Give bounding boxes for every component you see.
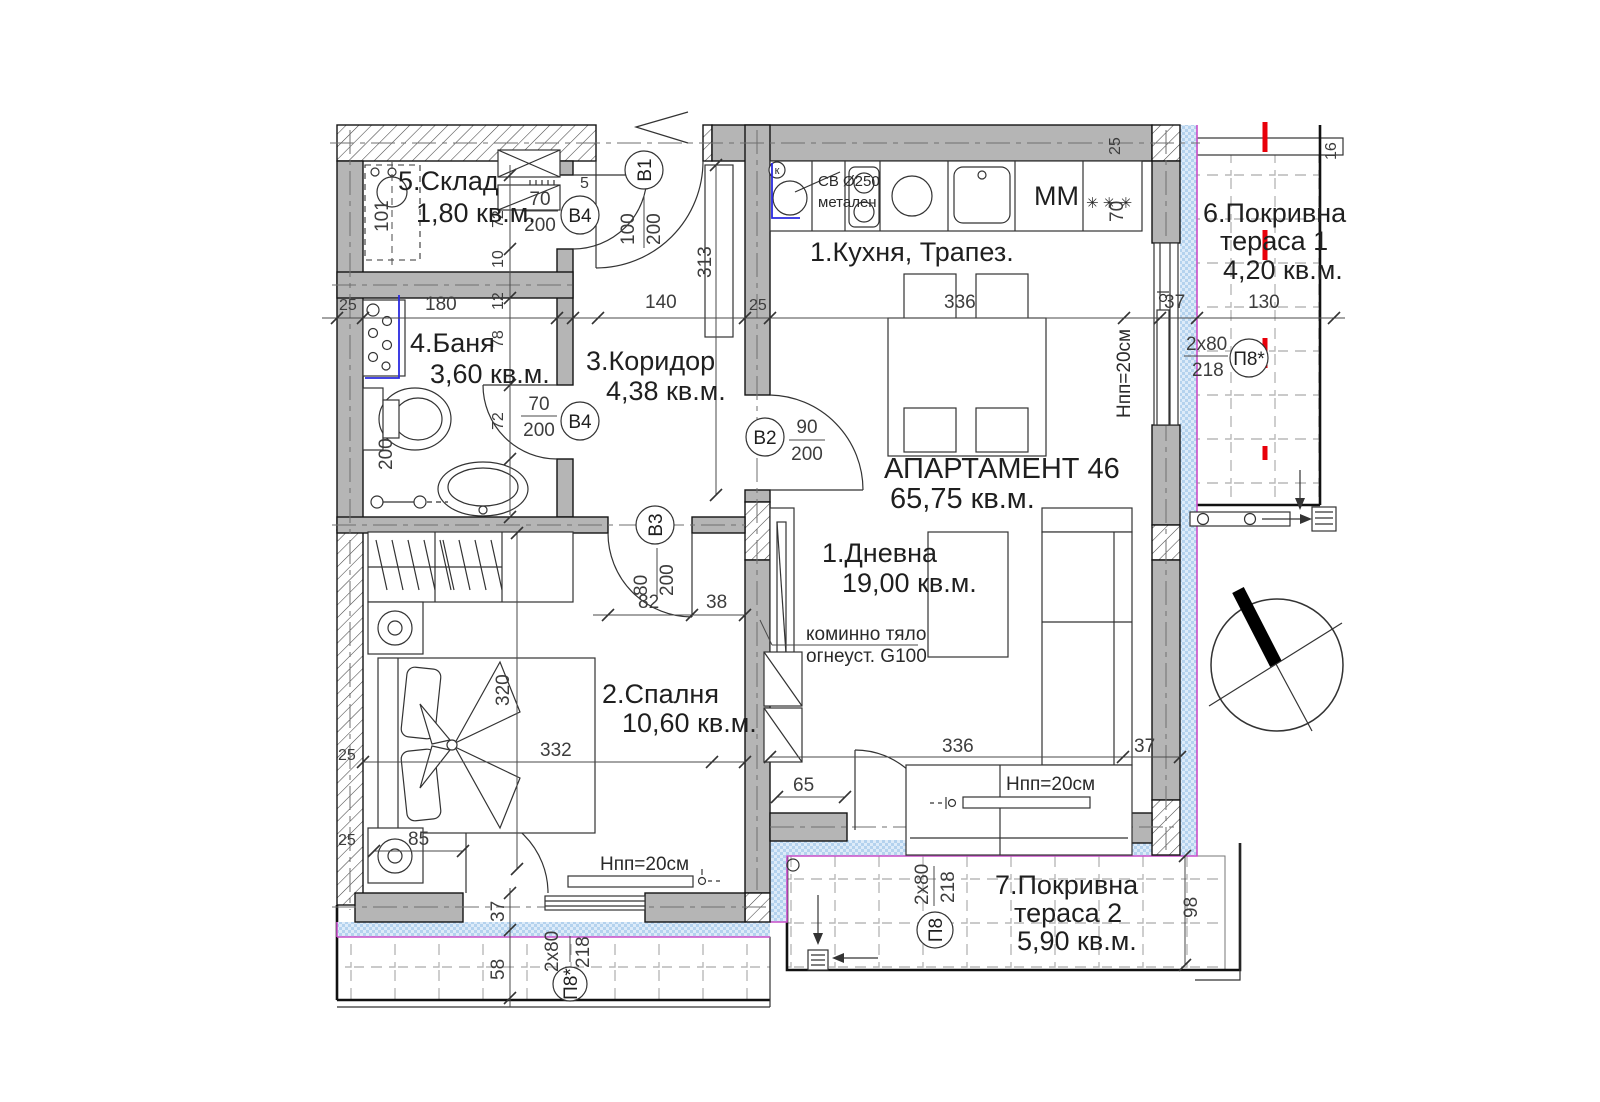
- dim: 100: [618, 213, 639, 245]
- washing-machine-label: ММ: [1034, 181, 1079, 211]
- dim: 37: [1164, 292, 1185, 313]
- dim: 218: [938, 871, 959, 903]
- dim: 25: [338, 832, 356, 849]
- floorplan-drawing: 25 180 140 25 336 37 130 25 16 101 200 7…: [0, 0, 1600, 1102]
- terrace2-name-1: 7.Покривна: [995, 870, 1139, 900]
- window-code-label: П8*: [561, 968, 582, 1000]
- bedroom-window: [545, 896, 645, 910]
- floorplan-page: 25 180 140 25 336 37 130 25 16 101 200 7…: [0, 0, 1600, 1102]
- dim: 2x80: [912, 864, 933, 905]
- corridor-name: 3.Коридор: [586, 346, 715, 376]
- dim: 200: [791, 444, 823, 465]
- radiator-living: [963, 797, 1090, 808]
- door-code-b4-bath: В4 70 200: [521, 394, 599, 441]
- dim: 25: [339, 297, 357, 314]
- dim: 98: [1181, 897, 1202, 918]
- nightstand-lamp: [368, 602, 423, 654]
- dim: 218: [573, 936, 594, 968]
- dim: 12: [490, 292, 507, 310]
- terrace1-area: 4,20 кв.м.: [1223, 255, 1343, 285]
- dim: 90: [796, 417, 817, 438]
- dim: 2x80: [1186, 334, 1227, 355]
- chair: [904, 408, 956, 452]
- north-arrow: [1209, 590, 1343, 731]
- door-code-b1: В1 100 200: [618, 151, 665, 248]
- chimney-note-1: коминно тяло: [806, 624, 926, 645]
- dim: 313: [695, 246, 716, 278]
- radiator-bedroom: [568, 876, 693, 887]
- window-code-label: П8: [926, 918, 947, 942]
- living-name: 1.Дневна: [822, 538, 938, 568]
- tv-cabinet: [770, 508, 794, 668]
- bedroom-area: 10,60 кв.м.: [622, 708, 757, 738]
- terrace2-area: 5,90 кв.м.: [1017, 926, 1137, 956]
- bedroom-name: 2.Спалня: [602, 679, 719, 709]
- dim: 336: [942, 736, 974, 757]
- dim: 65: [793, 775, 814, 796]
- dim: 130: [1248, 292, 1280, 313]
- storage-name: 5.Склад: [398, 166, 499, 196]
- dim: 320: [493, 674, 514, 706]
- dim: 58: [488, 959, 509, 980]
- dim: 25: [338, 747, 356, 764]
- dim: 200: [376, 438, 397, 470]
- dim: 72: [490, 412, 507, 430]
- chimney-note-2: огнеуст. G100: [806, 646, 927, 667]
- bath-sink: [438, 462, 528, 516]
- door-code-label: В4: [568, 412, 592, 433]
- fridge-symbol: ✳ ✳ ✳: [1086, 195, 1132, 212]
- dim: 332: [540, 740, 572, 761]
- dim: 140: [645, 292, 677, 313]
- wardrobe: [368, 532, 573, 602]
- dim: 16: [1323, 142, 1340, 160]
- dim: 218: [1192, 360, 1224, 381]
- dim: 25: [749, 297, 767, 314]
- dim: 200: [657, 564, 678, 596]
- radiator-kitchen: [1157, 310, 1169, 425]
- entrance-arrow: [636, 112, 688, 143]
- door-code-label: В3: [646, 513, 667, 536]
- k-riser-label: к: [775, 165, 780, 177]
- terrace1-name-2: тераса 1: [1220, 226, 1328, 256]
- dim: 37: [1134, 736, 1155, 757]
- dim: 70: [528, 394, 549, 415]
- dim: 10: [490, 250, 507, 268]
- dim: 5: [580, 175, 589, 192]
- door-code-label: В2: [753, 428, 776, 449]
- door-code-b3: В3 80 200: [631, 506, 678, 600]
- chair: [976, 274, 1028, 322]
- door-code-label: В4: [568, 206, 592, 227]
- door-code-b2: В2 90 200: [746, 417, 825, 465]
- dim: 37: [488, 901, 509, 922]
- storage-area: 1,80 кв.м.: [416, 198, 536, 228]
- duct-note-1: СВ Ø250: [818, 173, 880, 190]
- corridor-area: 4,38 кв.м.: [606, 376, 726, 406]
- dim: 200: [523, 420, 555, 441]
- bath-name: 4.Баня: [410, 328, 495, 358]
- terrace1-name-1: 6.Покривна: [1203, 198, 1347, 228]
- living-area: 19,00 кв.м.: [842, 568, 977, 598]
- towel-rail: [371, 496, 448, 508]
- kitchen-sink: [954, 167, 1010, 223]
- sill-height-kitchen: Нпп=20см: [1114, 329, 1135, 418]
- terrace2-name-2: тераса 2: [1014, 898, 1122, 928]
- apartment-area: 65,75 кв.м.: [890, 483, 1035, 515]
- dim: 336: [944, 292, 976, 313]
- dim: 101: [372, 200, 393, 232]
- dim: 200: [644, 213, 665, 245]
- dim: 25: [1107, 137, 1124, 155]
- bath-area: 3,60 кв.м.: [430, 359, 550, 389]
- window-code-label: П8*: [1233, 349, 1265, 370]
- dim: 180: [425, 294, 457, 315]
- door-code-label: В1: [635, 158, 656, 181]
- apartment-title: АПАРТАМЕНТ 46: [884, 453, 1120, 485]
- chair: [976, 408, 1028, 452]
- kitchen-name: 1.Кухня, Трапез.: [810, 237, 1014, 267]
- dim: 2x80: [542, 931, 563, 972]
- dim: 80: [631, 575, 652, 596]
- duct-note-2: метален: [818, 194, 877, 211]
- sill-height-living: Нпп=20см: [1006, 774, 1095, 795]
- dim: 38: [706, 592, 727, 613]
- living-door-b2: [770, 395, 863, 490]
- sill-height-bedroom: Нпп=20см: [600, 854, 689, 875]
- dim: 85: [408, 829, 429, 850]
